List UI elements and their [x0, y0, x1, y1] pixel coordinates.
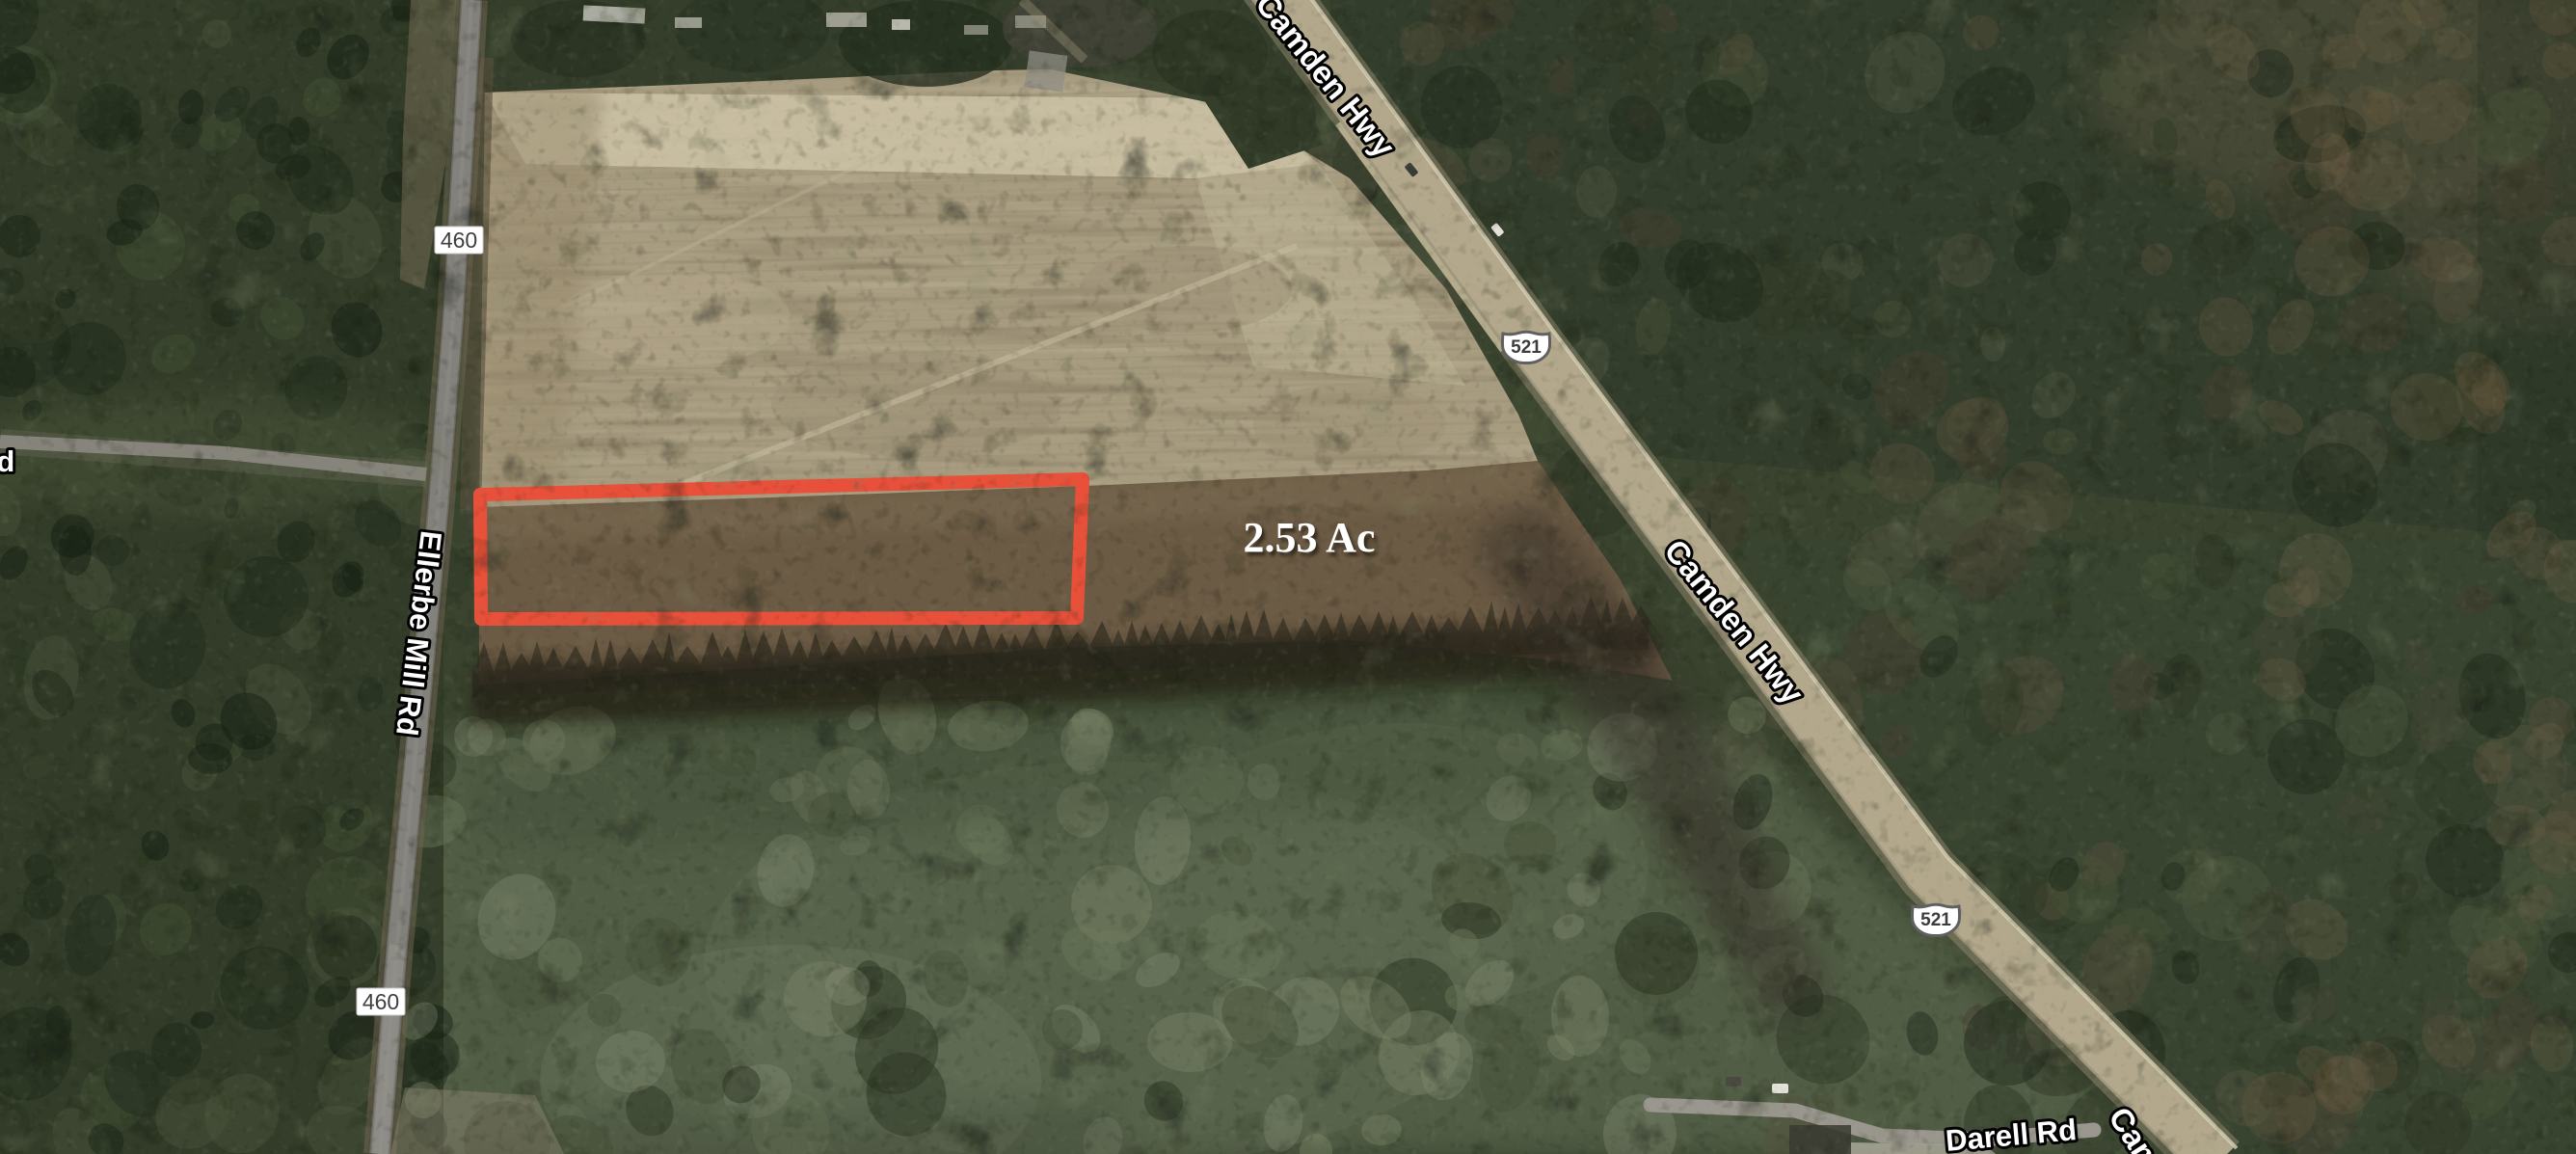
svg-text:460: 460: [362, 989, 399, 1014]
svg-text:2.53 Ac: 2.53 Ac: [1244, 514, 1376, 561]
svg-text:521: 521: [1920, 910, 1951, 930]
svg-text:Rd: Rd: [0, 444, 14, 478]
svg-text:460: 460: [441, 228, 477, 253]
svg-text:521: 521: [1511, 337, 1542, 358]
